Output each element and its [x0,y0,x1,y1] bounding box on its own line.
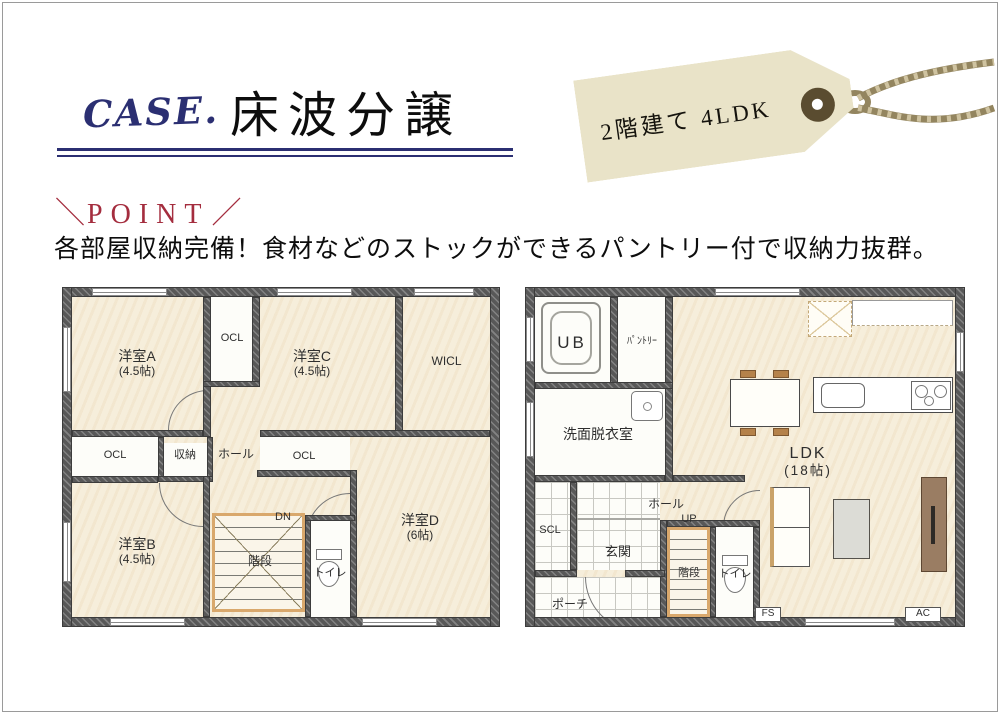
genkan-step [575,518,660,520]
flyer: CASE. 床波分譲 2階建て 4LDK ＼POINT／ 各部屋収納完備！食材な… [0,0,1000,714]
window-icon [715,288,800,296]
wall-segment [395,297,403,437]
chair [773,370,789,378]
window-icon [92,288,167,296]
room-yoshitsu-d: 洋室D (6帖) [360,513,480,542]
label-wicl: WICL [403,355,490,368]
wall-segment [203,476,210,617]
window-icon [63,522,71,582]
wall-segment [570,482,577,570]
label-ldk: LDK (18帖) [758,445,858,478]
room-yoshitsu-b: 洋室B (4.5帖) [77,537,197,566]
window-icon [805,618,895,626]
kitchen-sink-icon [821,383,865,408]
point-label: POINT [87,199,209,230]
window-icon [362,618,437,626]
floor-plan-1f: UB ﾊﾟﾝﾄﾘｰ 洗面脱衣室 LDK (18帖) ホール UP SCL 玄関 … [525,287,965,627]
tag-string-icon [828,40,998,160]
label-fs: FS [755,607,781,622]
wall-segment [305,515,311,617]
label-ub: UB [537,333,607,352]
label-ocl-left: OCL [72,449,158,461]
floor-plan-2f: 洋室A (4.5帖) OCL 洋室C (4.5帖) WICL OCL 収納 ホー… [62,287,500,627]
label-pantry: ﾊﾟﾝﾄﾘｰ [613,336,671,347]
tag-text: 2階建て 4LDK [598,89,773,147]
label-hall-1f: ホール [635,498,697,511]
info-tag: 2階建て 4LDK [573,42,859,182]
label-porch: ポーチ [539,598,601,611]
label-ocl-top: OCL [208,332,256,344]
room-yoshitsu-c: 洋室C (4.5帖) [257,349,367,378]
title-underline [57,148,513,157]
window-icon [526,317,534,362]
chair [740,370,756,378]
wall-segment [535,382,673,389]
chair [740,428,756,436]
wall-segment [535,570,577,577]
label-dn: DN [268,511,298,523]
window-icon [110,618,185,626]
label-ocl-right: OCL [260,450,348,462]
label-scl: SCL [529,524,571,536]
kitchen-cabinet [852,300,953,326]
label-kaidan-2f: 階段 [215,555,305,568]
window-icon [63,327,71,392]
case-label: CASE. [82,88,219,137]
wall-segment [203,381,260,387]
description-text: 各部屋収納完備！食材などのストックができるパントリー付で収納力抜群。 [54,229,989,265]
point-heading: ＼POINT／ [55,188,241,232]
label-hall-2f: ホール [206,448,266,461]
point-slash-left: ＼ [55,197,85,230]
chair [773,428,789,436]
wall-segment [305,515,355,521]
window-icon [277,288,352,296]
label-shuno: 収納 [160,449,210,461]
wall-segment [260,430,490,437]
wall-segment [350,470,357,617]
wall-segment [72,476,158,483]
wall-segment [203,297,211,437]
wall-segment [525,617,965,627]
fridge-icon [808,301,852,337]
label-up: UP [675,513,703,525]
tag-hole-icon [799,86,837,124]
wall-segment [673,475,745,482]
sofa [770,487,810,567]
wall-segment [490,287,500,627]
label-washroom: 洗面脱衣室 [537,427,659,443]
wall-segment [72,430,203,437]
stove-icon [911,381,951,410]
coffee-table [833,499,870,559]
wall-segment [257,470,357,477]
room-yoshitsu-a: 洋室A (4.5帖) [82,349,192,378]
label-kaidan-1f: 階段 [665,567,713,579]
dining-table [730,379,800,427]
tv-board [921,477,947,572]
window-icon [414,288,474,296]
wall-segment [535,475,665,482]
window-icon [956,332,964,372]
wall-segment [625,570,665,577]
label-toilet-1f: トイレ [709,568,761,580]
label-ac: AC [905,607,941,622]
washbasin-icon [631,391,663,421]
label-toilet-2f: トイレ [302,567,358,579]
point-slash-right: ／ [211,197,241,230]
label-genkan: 玄関 [585,545,651,560]
wall-segment [665,297,673,482]
window-icon [526,402,534,457]
page-title: 床波分譲 [230,76,462,147]
